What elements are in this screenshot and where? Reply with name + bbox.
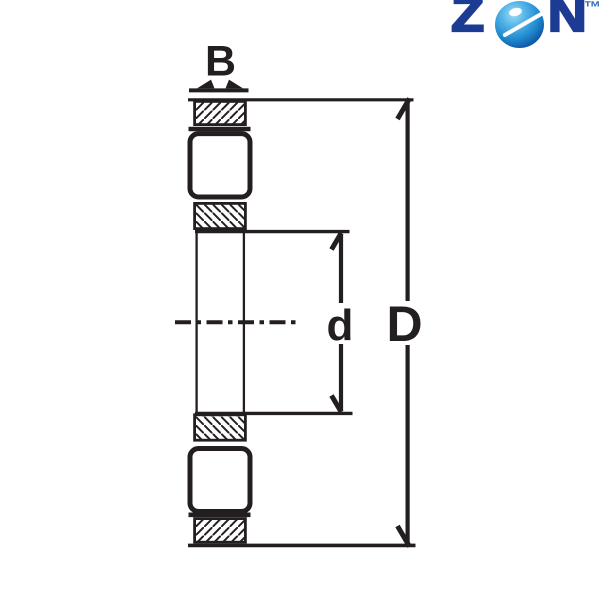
inner-ring-bottom-section (195, 415, 246, 440)
outer-ring-bottom-section (195, 519, 246, 543)
outer-diameter-label: D (386, 296, 422, 352)
outer-ring-top-section (195, 101, 246, 124)
bearing-diagram: B d D (0, 0, 600, 600)
roller-bottom (190, 449, 250, 512)
roller-top (190, 134, 250, 197)
bore-diameter-label: d (327, 301, 354, 350)
width-label: B (205, 38, 236, 86)
drawing-canvas: Z N ™ (0, 0, 600, 600)
inner-ring-top-section (195, 203, 246, 228)
